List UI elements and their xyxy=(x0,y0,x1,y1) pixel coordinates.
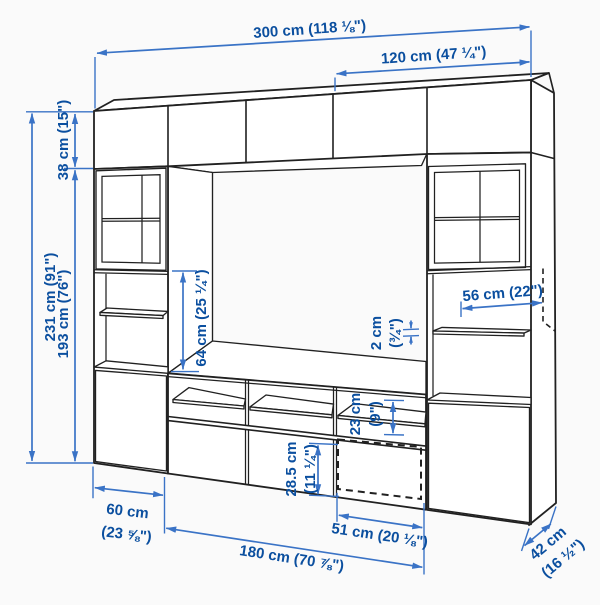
dim-lower-section-height-label: 193 cm (76") xyxy=(55,270,72,359)
dim-drawer-front-height-label-2: (11 ¼") xyxy=(302,444,319,494)
dim-open-section-height-label: 64 cm (25 ¼") xyxy=(193,269,210,366)
dim-drawer-front-height-label-1: 28.5 cm xyxy=(283,441,300,496)
left-door xyxy=(96,370,167,471)
dim-compartment-height-label-1: 23 cm xyxy=(347,393,364,436)
right-door xyxy=(429,403,530,523)
dim-shelf-thickness: 2 cm (¾") xyxy=(368,316,419,350)
dim-top-cabinet-height-label: 38 cm (15") xyxy=(55,100,72,181)
dim-base-cabinet-width-label-1: 60 cm xyxy=(105,501,149,523)
dim-compartment-height-label-2: (9") xyxy=(367,401,384,426)
dim-upper-right-width-label: 120 cm (47 ¼") xyxy=(380,43,486,67)
dim-shelf-thickness-label-2: (¾") xyxy=(387,318,404,348)
dim-drawer-width-label: 51 cm (20 ⅛") xyxy=(330,520,429,551)
dimension-diagram: 300 cm (118 ⅛") 120 cm (47 ¼") 231 cm (9… xyxy=(0,0,600,600)
dim-base-cabinet-width: 60 cm (23 ⅝") xyxy=(93,467,165,546)
dim-base-cabinet-width-label-2: (23 ⅝") xyxy=(100,523,152,546)
dim-lower-section-height: 193 cm (76") xyxy=(55,170,75,461)
dim-shelf-thickness-label-1: 2 cm xyxy=(368,316,385,350)
left-glass-door-frame xyxy=(96,168,166,270)
storage-combination-diagram: 300 cm (118 ⅛") 120 cm (47 ¼") 231 cm (9… xyxy=(0,0,600,600)
